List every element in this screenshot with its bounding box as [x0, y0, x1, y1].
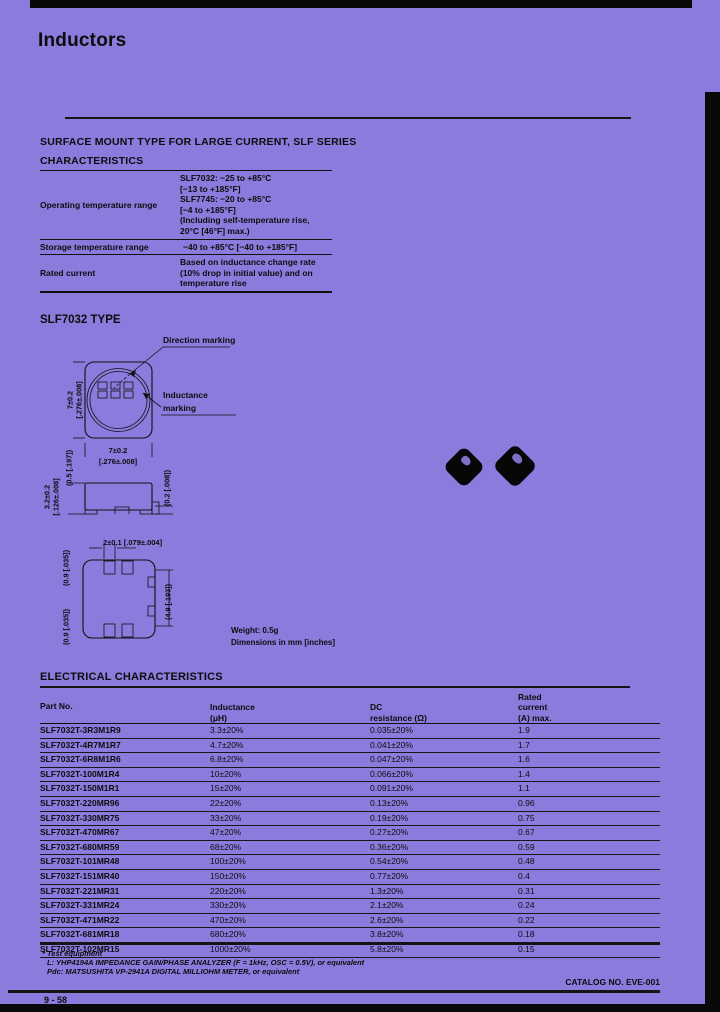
inductance-value: 100±20% [210, 855, 370, 869]
table-row: SLF7032T-3R3M1R93.3±20%0.035±20%1.9 [40, 724, 660, 739]
part-no: SLF7032T-471MR22 [40, 914, 210, 928]
section-heading: SURFACE MOUNT TYPE FOR LARGE CURRENT, SL… [40, 136, 356, 148]
dimensions-note: Dimensions in mm [inches] [231, 638, 335, 647]
dim-bottomview-left-upper: (0.9 [.035]) [63, 550, 72, 586]
table-row: SLF7032T-101MR48100±20%0.54±20%0.48 [40, 855, 660, 870]
table-row: SLF7032T-330MR7533±20%0.19±20%0.75 [40, 812, 660, 827]
header-line: current [518, 702, 660, 713]
col-header-inductance: Inductance (μH) [210, 702, 370, 723]
col-header-dc: DC resistance (Ω) [370, 702, 518, 723]
side-view-outline [68, 483, 173, 514]
dim-topview-bottom-in: [.276±.008] [78, 457, 158, 466]
inductance-value: 68±20% [210, 841, 370, 855]
top-view-outline [85, 362, 152, 438]
title-divider [65, 117, 631, 119]
row-label: Rated current [40, 255, 178, 291]
electrical-table-header: Part No. Inductance (μH) DC resistance (… [40, 690, 660, 724]
datasheet-page: Inductors SURFACE MOUNT TYPE FOR LARGE C… [0, 0, 720, 1012]
electrical-heading: ELECTRICAL CHARACTERISTICS [40, 671, 223, 683]
dc-resistance-value: 0.54±20% [370, 855, 518, 869]
component-photo-left [443, 446, 485, 488]
row-label: Storage temperature range [40, 240, 178, 255]
col-header-part: Part No. [40, 701, 210, 712]
header-line: (μH) [210, 713, 370, 724]
col-header-rated: Rated current (A) max. [518, 692, 660, 724]
rated-current-value: 0.24 [518, 899, 660, 913]
table-row: SLF7032T-150M1R115±20%0.091±20%1.1 [40, 782, 660, 797]
dc-resistance-value: 0.36±20% [370, 841, 518, 855]
header-line: Inductance [210, 702, 370, 713]
electrical-table-bottom-rule [40, 942, 660, 945]
rated-current-value: 0.18 [518, 928, 660, 942]
dc-resistance-value: 0.041±20% [370, 739, 518, 753]
table-row: SLF7032T-6R8M1R66.8±20%0.047±20%1.6 [40, 753, 660, 768]
part-no: SLF7032T-680MR59 [40, 841, 210, 855]
table-row: Rated current Based on inductance change… [40, 255, 332, 293]
part-no: SLF7032T-220MR96 [40, 797, 210, 811]
inductance-value: 680±20% [210, 928, 370, 942]
scan-border-top [30, 0, 692, 8]
table-row: SLF7032T-470MR6747±20%0.27±20%0.67 [40, 826, 660, 841]
page-number: 9 - 58 [44, 995, 67, 1005]
header-line: (A) max. [518, 713, 660, 724]
dim-in: [.276±.008] [75, 381, 84, 418]
dim-bottomview-top: 2±0.1 [.079±.004] [103, 538, 162, 547]
part-no: SLF7032T-6R8M1R6 [40, 753, 210, 767]
electrical-heading-underline [40, 686, 630, 688]
inductance-value: 150±20% [210, 870, 370, 884]
part-no: SLF7032T-4R7M1R7 [40, 739, 210, 753]
inductance-value: 4.7±20% [210, 739, 370, 753]
rated-current-value: 1.1 [518, 782, 660, 796]
value-line: temperature rise [180, 278, 332, 289]
dim-sideview-left-top: (0.5 [.197]) [66, 450, 75, 486]
rated-current-value: 1.6 [518, 753, 660, 767]
footnote-analyzer: L: YHP4194A IMPEDANCE GAIN/PHASE ANALYZE… [47, 958, 364, 967]
table-row: SLF7032T-4R7M1R74.7±20%0.041±20%1.7 [40, 739, 660, 754]
table-row: Operating temperature range SLF7032: −25… [40, 171, 332, 240]
inductance-value: 3.3±20% [210, 724, 370, 738]
dc-resistance-value: 0.77±20% [370, 870, 518, 884]
characteristics-table: Operating temperature range SLF7032: −25… [40, 170, 332, 293]
dc-resistance-value: 0.035±20% [370, 724, 518, 738]
dc-resistance-value: 2.6±20% [370, 914, 518, 928]
table-row: SLF7032T-100M1R410±20%0.066±20%1.4 [40, 768, 660, 783]
inductance-value: 220±20% [210, 885, 370, 899]
part-no: SLF7032T-681MR18 [40, 928, 210, 942]
rated-current-value: 1.4 [518, 768, 660, 782]
component-photo-right [492, 443, 537, 488]
row-value: SLF7032: −25 to +85°C [−13 to +185°F] SL… [178, 171, 332, 239]
value-line: SLF7745: −20 to +85°C [180, 194, 332, 205]
rated-current-value: 0.59 [518, 841, 660, 855]
footnote-test-equipment: * Test equipment [42, 949, 102, 958]
rated-current-value: 1.7 [518, 739, 660, 753]
table-row: SLF7032T-471MR22470±20%2.6±20%0.22 [40, 914, 660, 929]
table-row: SLF7032T-681MR18680±20%3.8±20%0.18 [40, 928, 660, 943]
dim-bottomview-right: (4.9 [.193]) [165, 584, 174, 620]
footnote-milliohm-meter: Pdc: MATSUSHITA VP-2941A DIGITAL MILLIOH… [47, 967, 299, 976]
inductance-value: 6.8±20% [210, 753, 370, 767]
bottom-view-outline [83, 544, 173, 638]
dc-resistance-value: 2.1±20% [370, 899, 518, 913]
value-line: −40 to +85°C [−40 to +185°F] [183, 242, 332, 253]
header-line: resistance (Ω) [370, 713, 518, 724]
dc-resistance-value: 0.066±20% [370, 768, 518, 782]
table-row: Storage temperature range −40 to +85°C [… [40, 240, 332, 256]
table-row: SLF7032T-680MR5968±20%0.36±20%0.59 [40, 841, 660, 856]
catalog-number: CATALOG NO. EVE-001 [400, 977, 660, 987]
part-no: SLF7032T-221MR31 [40, 885, 210, 899]
value-line: SLF7032: −25 to +85°C [180, 173, 332, 184]
inductance-marking-label-line2: marking [163, 403, 196, 413]
table-row: SLF7032T-220MR9622±20%0.13±20%0.96 [40, 797, 660, 812]
inductance-value: 22±20% [210, 797, 370, 811]
inductance-value: 33±20% [210, 812, 370, 826]
page-title: Inductors [38, 30, 126, 52]
row-value: Based on inductance change rate (10% dro… [178, 255, 332, 291]
inductance-value: 470±20% [210, 914, 370, 928]
value-line: [−13 to +185°F] [180, 184, 332, 195]
dim-topview-left: 7±0.2 [.276±.008] [66, 381, 84, 418]
dc-resistance-value: 0.13±20% [370, 797, 518, 811]
electrical-table: Part No. Inductance (μH) DC resistance (… [40, 690, 660, 958]
footer-rule [8, 990, 660, 993]
table-row: SLF7032T-331MR24330±20%2.1±20%0.24 [40, 899, 660, 914]
dc-resistance-value: 0.19±20% [370, 812, 518, 826]
header-line: Rated [518, 692, 660, 703]
inductance-value: 15±20% [210, 782, 370, 796]
value-line: 20°C [46°F] max.) [180, 226, 332, 237]
rated-current-value: 0.96 [518, 797, 660, 811]
dim-in: [.126±.008] [52, 478, 61, 515]
value-line: (Including self-temperature rise, [180, 215, 332, 226]
value-line: Based on inductance change rate [180, 257, 332, 268]
dim-sideview-right: (0.2 [.008]) [164, 470, 173, 506]
part-no: SLF7032T-331MR24 [40, 899, 210, 913]
rated-current-value: 0.75 [518, 812, 660, 826]
dc-resistance-value: 0.047±20% [370, 753, 518, 767]
part-no: SLF7032T-101MR48 [40, 855, 210, 869]
part-no: SLF7032T-330MR75 [40, 812, 210, 826]
row-label: Operating temperature range [40, 171, 178, 239]
part-no: SLF7032T-150M1R1 [40, 782, 210, 796]
dim-bottomview-left-lower: (0.9 [.035]) [63, 609, 72, 645]
scan-border-right [705, 92, 720, 1012]
dc-resistance-value: 0.091±20% [370, 782, 518, 796]
type-heading: SLF7032 TYPE [40, 314, 121, 326]
part-no: SLF7032T-100M1R4 [40, 768, 210, 782]
rated-current-value: 0.67 [518, 826, 660, 840]
dimension-drawings [40, 330, 360, 660]
characteristics-heading: CHARACTERISTICS [40, 155, 143, 167]
inductance-value: 330±20% [210, 899, 370, 913]
dc-resistance-value: 0.27±20% [370, 826, 518, 840]
inductance-value: 10±20% [210, 768, 370, 782]
value-line: (10% drop in initial value) and on [180, 268, 332, 279]
rated-current-value: 1.9 [518, 724, 660, 738]
table-row: SLF7032T-102MR151000±20%5.8±20%0.15 [40, 943, 660, 958]
dc-resistance-value: 1.3±20% [370, 885, 518, 899]
dc-resistance-value: 3.8±20% [370, 928, 518, 942]
part-no: SLF7032T-3R3M1R9 [40, 724, 210, 738]
rated-current-value: 0.4 [518, 870, 660, 884]
value-line: [−4 to +185°F] [180, 205, 332, 216]
dim-sideview-left: 3.2±0.2 [.126±.008] [43, 478, 61, 515]
weight-note: Weight: 0.5g [231, 626, 278, 635]
rated-current-value: 0.31 [518, 885, 660, 899]
header-line: DC [370, 702, 518, 713]
table-row: SLF7032T-151MR40150±20%0.77±20%0.4 [40, 870, 660, 885]
table-row: SLF7032T-221MR31220±20%1.3±20%0.31 [40, 885, 660, 900]
scan-border-bottom [0, 1004, 720, 1012]
row-value: −40 to +85°C [−40 to +185°F] [178, 240, 332, 255]
rated-current-value: 0.22 [518, 914, 660, 928]
rated-current-value: 0.48 [518, 855, 660, 869]
part-no: SLF7032T-151MR40 [40, 870, 210, 884]
inductance-marking-label-line1: Inductance [163, 390, 208, 400]
part-no: SLF7032T-470MR67 [40, 826, 210, 840]
dim-topview-bottom-mm: 7±0.2 [78, 446, 158, 455]
direction-marking-label: Direction marking [163, 335, 235, 345]
inductance-value: 47±20% [210, 826, 370, 840]
